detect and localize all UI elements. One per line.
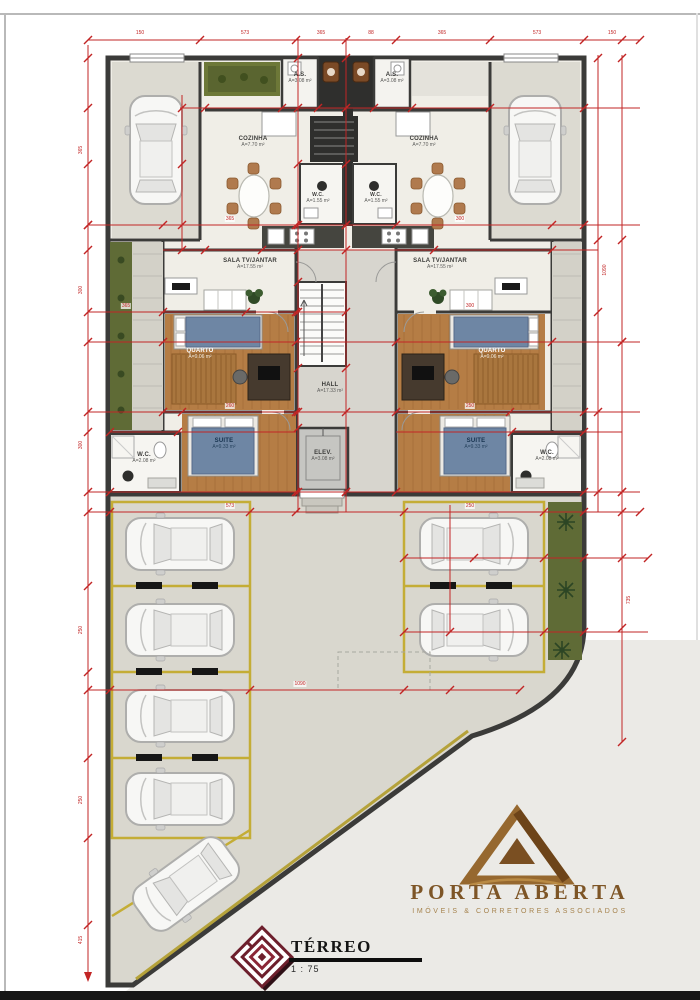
room-label-quarto-left: QUARTOA=9.06 m² xyxy=(186,348,213,361)
dimension-label: 365 xyxy=(437,30,447,36)
bed-quarto-right xyxy=(450,315,538,349)
rug-right xyxy=(474,354,538,404)
title-underline xyxy=(289,958,422,962)
tv-left xyxy=(165,278,197,294)
car-top-view xyxy=(126,513,234,575)
room-label-sala-left: SALA TV/JANTARA=17.55 m² xyxy=(223,258,277,271)
drawing-sheet: A.S.A=3.08 m² A.S.A=3.08 m² COZINHAA=7.7… xyxy=(0,0,700,1000)
sheet-border-bottom xyxy=(0,991,700,1000)
brand-name: PORTA ABERTA xyxy=(410,880,629,905)
dimension-label: 365 xyxy=(225,216,235,222)
tv-right xyxy=(495,278,527,294)
dimension-label: 250 xyxy=(465,503,475,509)
fridge-right xyxy=(396,112,430,136)
car-top-view xyxy=(126,768,234,830)
entry-step xyxy=(302,498,342,506)
room-label-sala-right: SALA TV/JANTARA=17.55 m² xyxy=(413,258,467,271)
dimension-label: 250 xyxy=(465,403,475,409)
bed-quarto-left xyxy=(174,315,262,349)
sheet-scale: 1 : 75 xyxy=(291,964,320,974)
car-top-view xyxy=(420,599,528,661)
dimension-label: 1090 xyxy=(602,263,608,276)
room-label-as-right: A.S.A=3.08 m² xyxy=(380,72,403,85)
dimension-label: 1090 xyxy=(293,681,306,687)
room-label-cozinha-right: COZINHAA=7.70 m² xyxy=(410,136,439,149)
room-label-quarto-right: QUARTOA=9.06 m² xyxy=(478,348,505,361)
car-top-view xyxy=(126,685,234,747)
dimension-label: 300 xyxy=(78,285,84,295)
dimension-label: 260 xyxy=(225,403,235,409)
room-label-suite-left: SUITEA=9.33 m² xyxy=(212,438,235,451)
car-garage-left xyxy=(125,96,187,204)
dimension-label: 365 xyxy=(316,30,326,36)
sheet-title: TÉRREO xyxy=(291,937,372,957)
dimension-label: 150 xyxy=(135,30,145,36)
car-top-view xyxy=(420,513,528,575)
dimension-label: 573 xyxy=(240,30,250,36)
dimension-label: 250 xyxy=(78,795,84,805)
walkway-right xyxy=(552,242,582,430)
dimension-label: 365 xyxy=(78,145,84,155)
dimension-label: 573 xyxy=(225,503,235,509)
floor-plan-drawing xyxy=(0,0,700,1000)
room-label-wc-right: W.C.A=2.08 m² xyxy=(535,450,558,463)
car-garage-right xyxy=(504,96,566,204)
dimension-label: 300 xyxy=(78,440,84,450)
green-strip xyxy=(548,502,582,660)
room-label-lavabo-left: W.C.A=1.55 m² xyxy=(306,193,329,205)
dimension-label: 300 xyxy=(465,303,475,309)
dimension-label: 250 xyxy=(78,625,84,635)
fridge-left xyxy=(262,112,296,136)
tree-icon xyxy=(557,513,575,531)
dimension-label: 415 xyxy=(78,935,84,945)
room-label-lavabo-right: W.C.A=1.55 m² xyxy=(364,193,387,205)
tree-icon xyxy=(553,641,571,659)
car-top-view xyxy=(126,599,234,661)
dimension-label: 300 xyxy=(455,216,465,222)
dimension-label: 735 xyxy=(626,595,632,605)
upper-stair-flight xyxy=(310,116,358,162)
walkway-left xyxy=(132,242,163,430)
room-label-hall: HALLA=17.33 m² xyxy=(317,382,343,395)
tree-icon xyxy=(557,581,575,599)
room-label-as-left: A.S.A=3.08 m² xyxy=(288,72,311,85)
wc-right xyxy=(512,434,582,492)
room-label-elev: ELEV.A=3.08 m² xyxy=(311,450,334,463)
dimension-label: 365 xyxy=(121,303,131,309)
cabinet-left xyxy=(204,290,246,310)
dimension-label: 573 xyxy=(532,30,542,36)
room-label-wc-left: W.C.A=2.08 m² xyxy=(132,452,155,465)
dimension-label: 88 xyxy=(367,30,375,36)
entry-door xyxy=(300,490,344,498)
room-label-suite-right: SUITEA=9.33 m² xyxy=(464,438,487,451)
room-label-cozinha-left: COZINHAA=7.70 m² xyxy=(239,136,268,149)
brand-tagline: IMÓVEIS & CORRETORES ASSOCIADOS xyxy=(412,908,627,915)
dimension-label: 150 xyxy=(607,30,617,36)
